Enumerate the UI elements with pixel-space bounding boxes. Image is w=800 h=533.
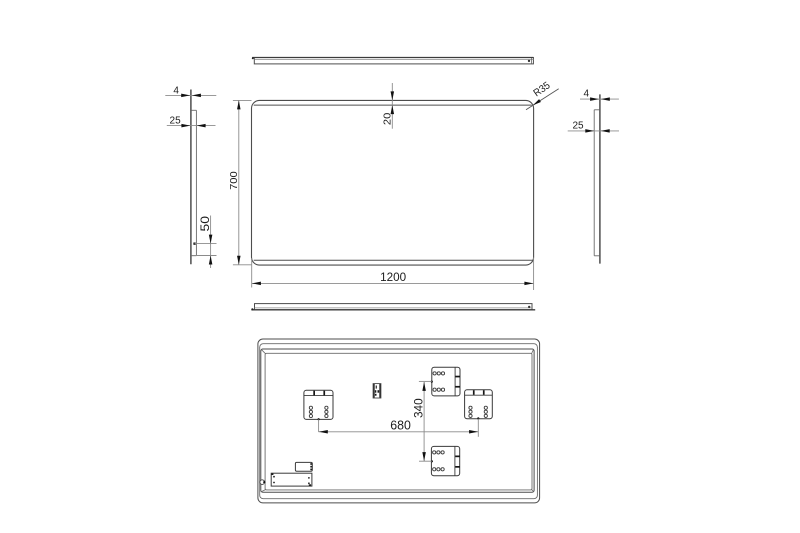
svg-text:700: 700 [229,171,240,190]
svg-text:25: 25 [572,121,584,132]
svg-text:340: 340 [412,398,426,418]
svg-text:4: 4 [173,85,179,96]
svg-text:4: 4 [584,89,590,100]
svg-text:20: 20 [383,112,394,125]
svg-text:50: 50 [199,215,212,231]
svg-text:680: 680 [390,418,411,433]
svg-text:25: 25 [170,116,182,127]
svg-text:1200: 1200 [380,270,406,284]
